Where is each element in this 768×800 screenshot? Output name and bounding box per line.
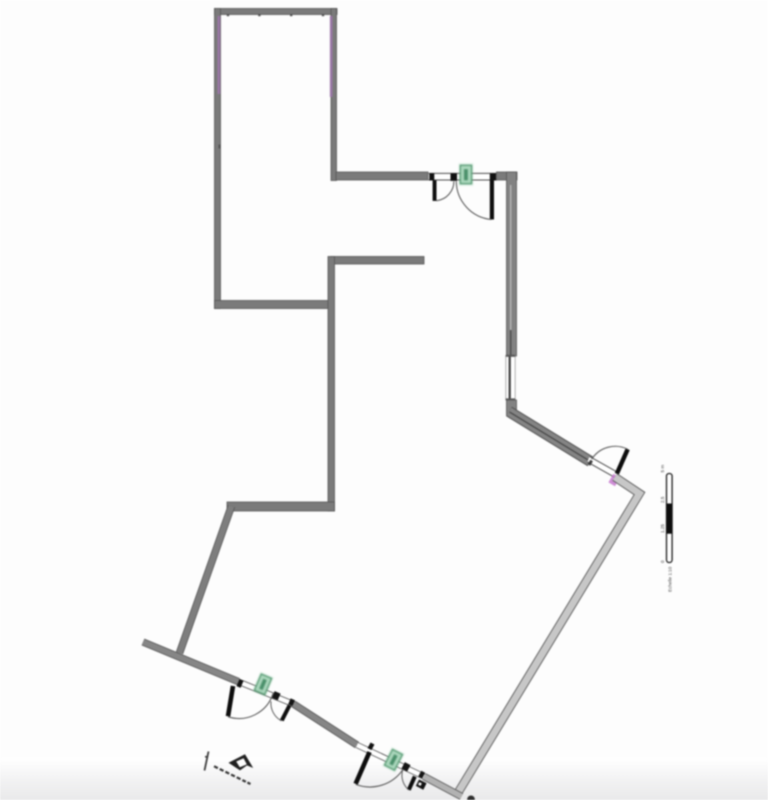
svg-text:1.25: 1.25 [660, 524, 665, 533]
svg-text:5 m: 5 m [660, 465, 665, 473]
svg-text:0: 0 [660, 560, 665, 563]
svg-text:2.5: 2.5 [660, 496, 665, 503]
svg-text:Echelle 1:10: Echelle 1:10 [668, 566, 673, 592]
